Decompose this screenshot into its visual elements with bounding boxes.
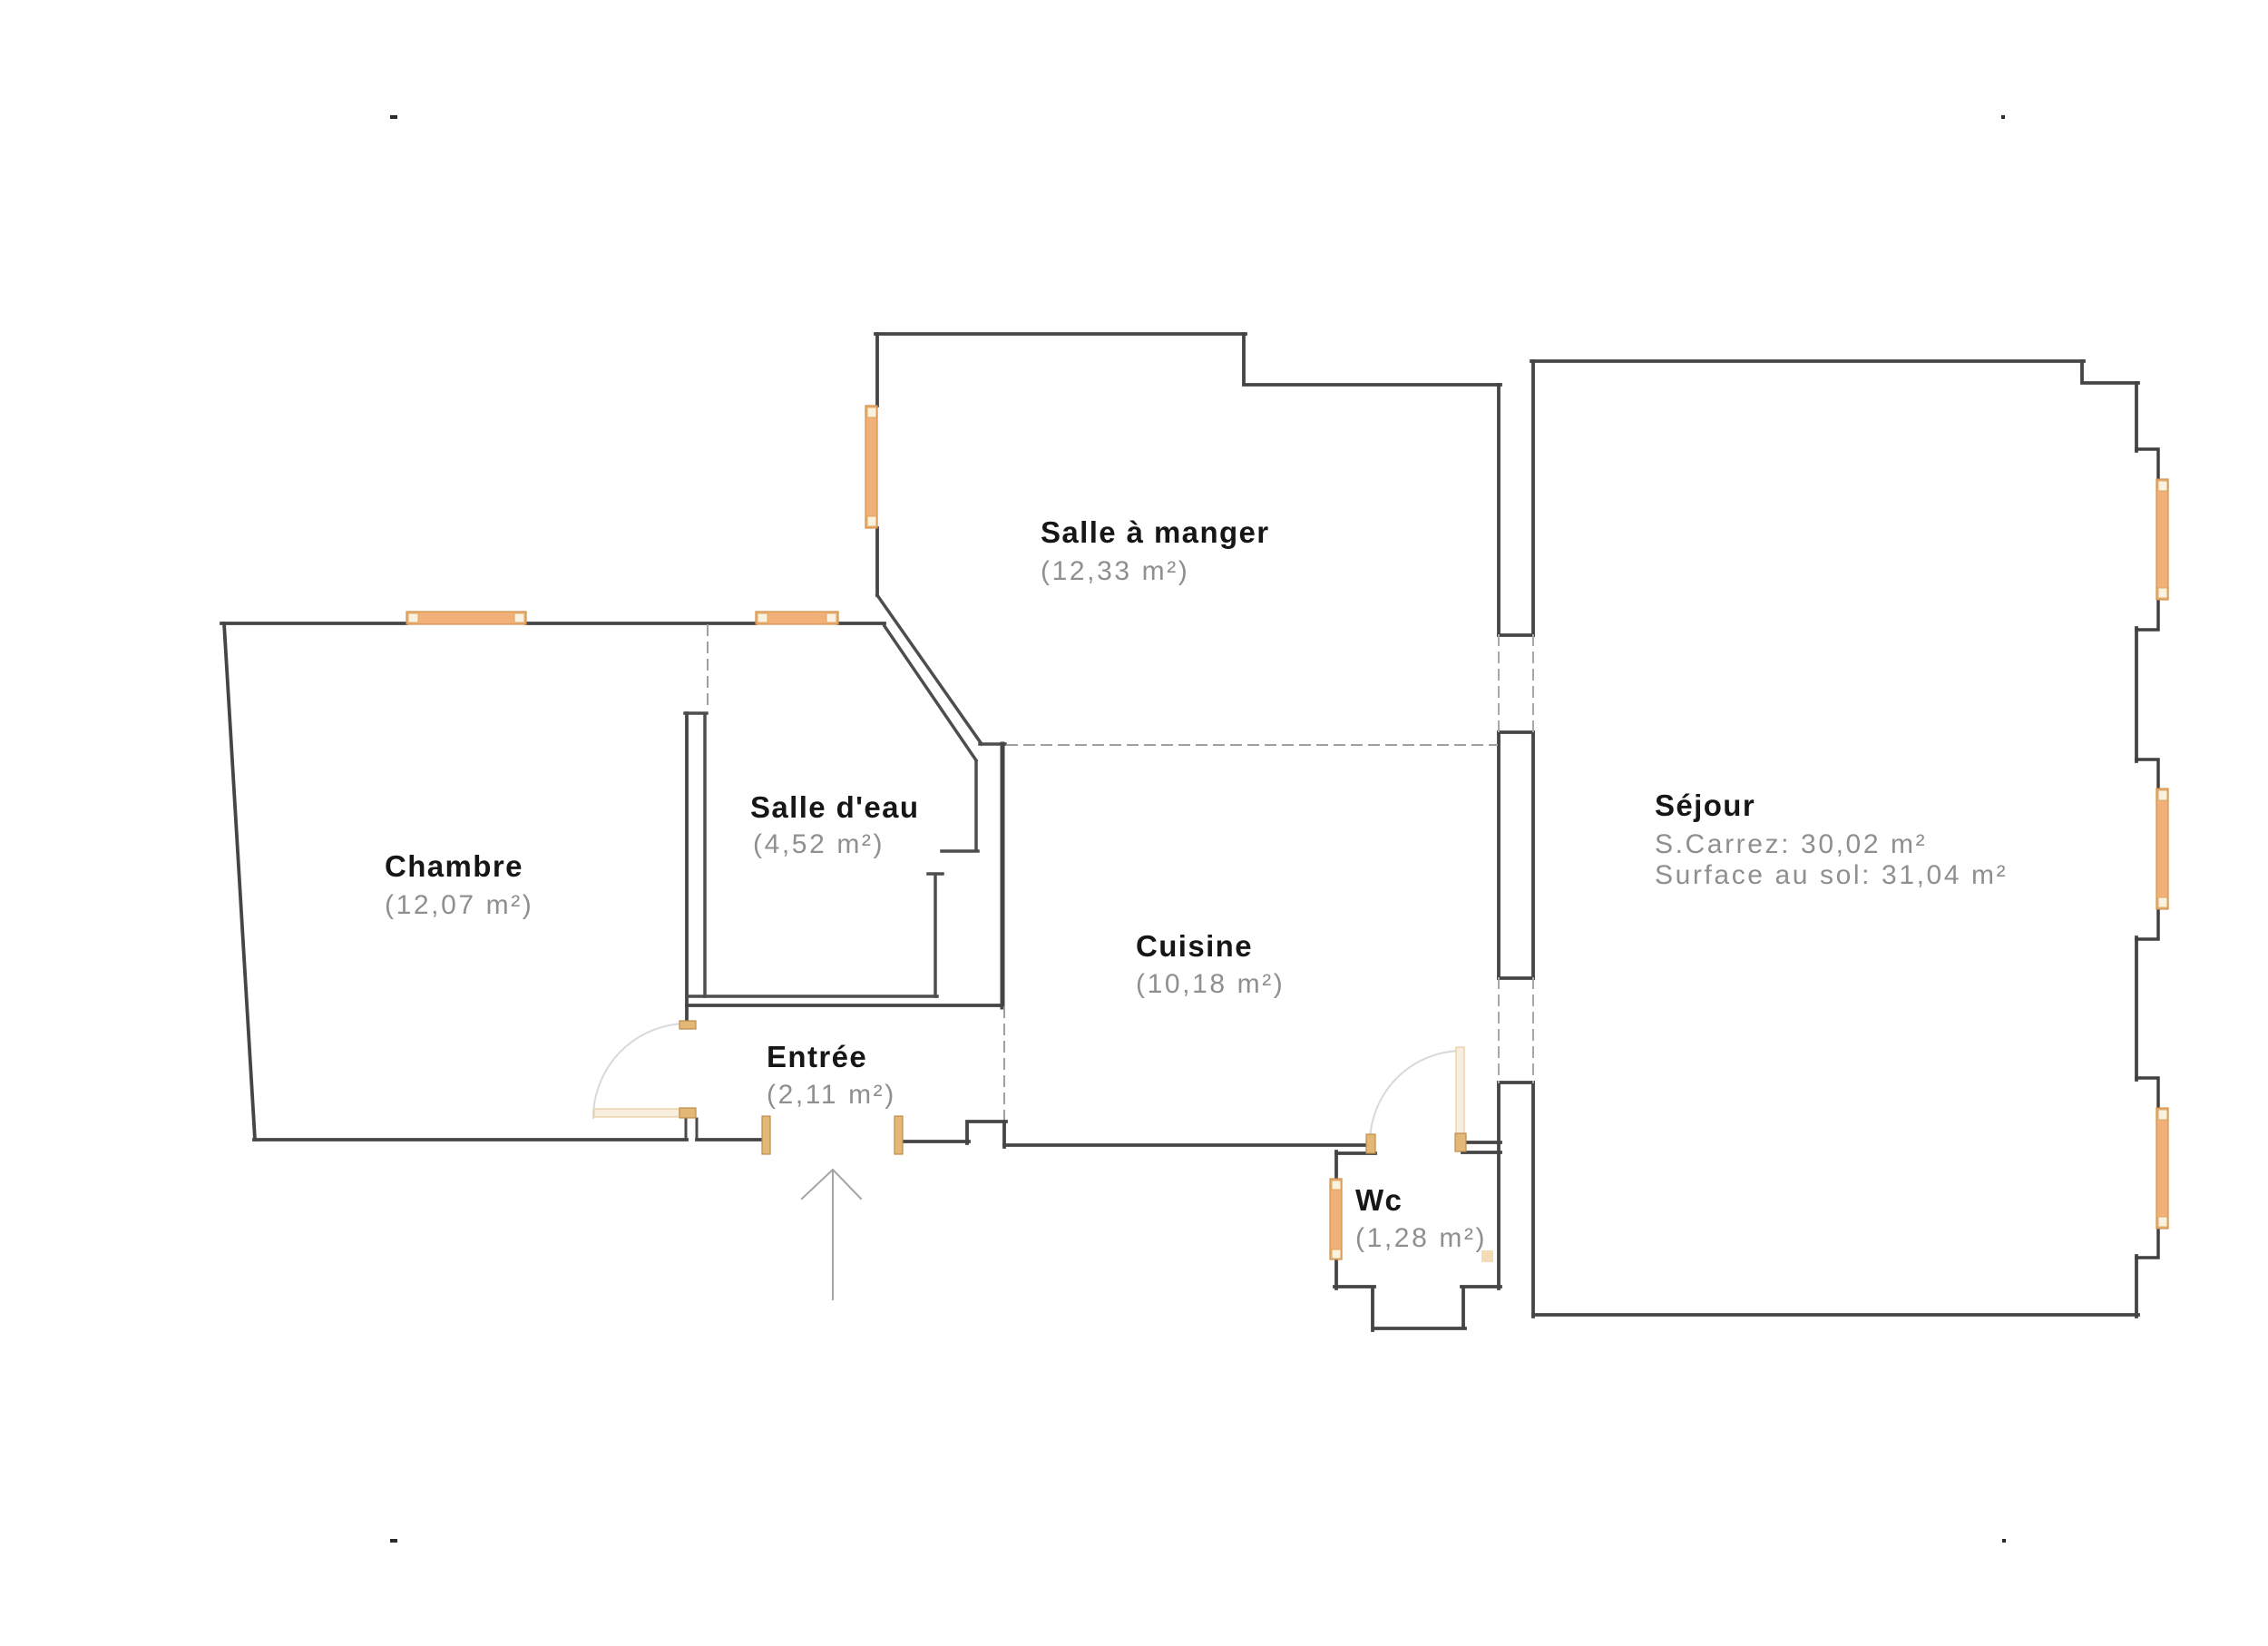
svg-text:(1,28 m²): (1,28 m²) [1355, 1223, 1487, 1253]
svg-text:(12,07 m²): (12,07 m²) [385, 890, 533, 920]
svg-text:S.Carrez: 30,02 m²: S.Carrez: 30,02 m² [1655, 829, 1927, 859]
svg-text:Salle à manger: Salle à manger [1041, 515, 1270, 549]
svg-text:Entrée: Entrée [767, 1040, 867, 1073]
svg-text:Wc: Wc [1355, 1183, 1403, 1217]
svg-text:Salle d'eau: Salle d'eau [750, 790, 920, 824]
svg-text:(4,52 m²): (4,52 m²) [753, 829, 885, 859]
svg-text:(12,33 m²): (12,33 m²) [1041, 556, 1189, 586]
svg-text:Chambre: Chambre [385, 849, 523, 883]
svg-text:(10,18 m²): (10,18 m²) [1136, 969, 1285, 999]
svg-text:Séjour: Séjour [1655, 789, 1755, 822]
svg-text:(2,11 m²): (2,11 m²) [767, 1080, 896, 1110]
svg-text:Surface au sol: 31,04 m²: Surface au sol: 31,04 m² [1655, 860, 2008, 890]
svg-text:Cuisine: Cuisine [1136, 929, 1253, 963]
